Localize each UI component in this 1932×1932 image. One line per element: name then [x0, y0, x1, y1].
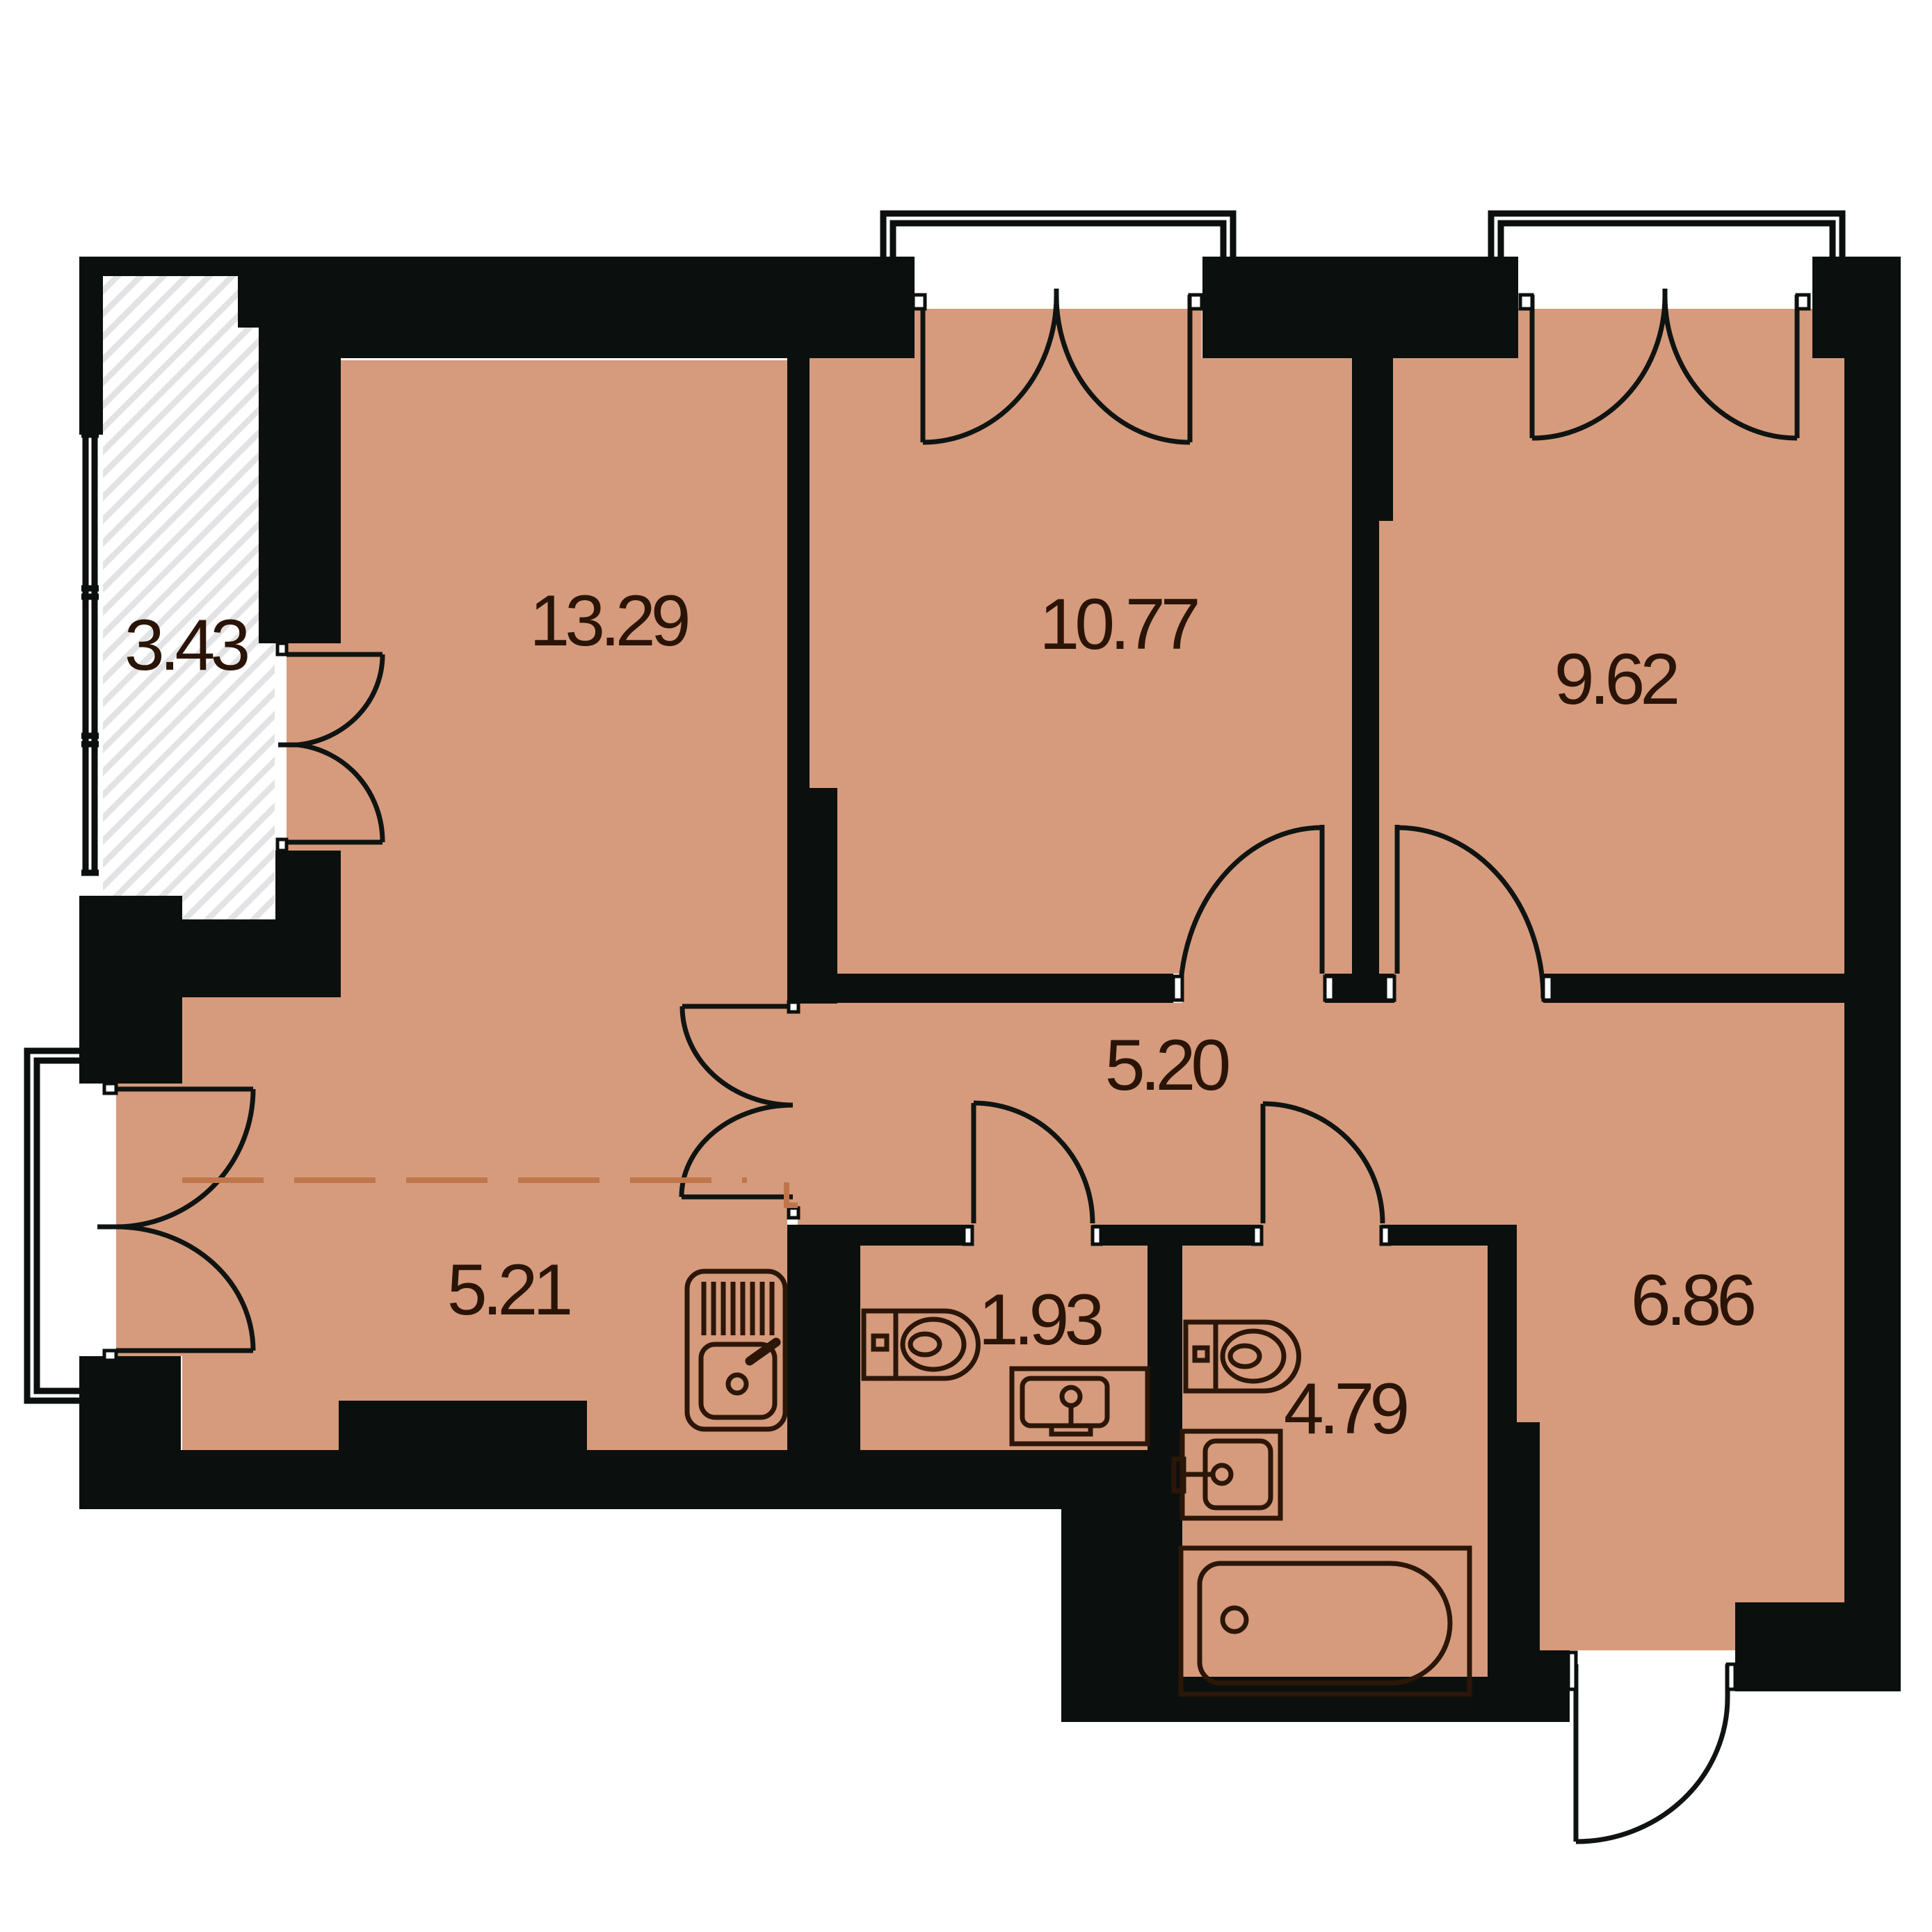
svg-text:10.77: 10.77: [1039, 584, 1197, 665]
svg-text:5.20: 5.20: [1105, 1025, 1229, 1106]
svg-text:5.21: 5.21: [447, 1250, 570, 1330]
svg-text:4.79: 4.79: [1284, 1369, 1407, 1449]
svg-text:1.93: 1.93: [979, 1280, 1102, 1360]
svg-text:6.86: 6.86: [1631, 1260, 1755, 1341]
svg-text:13.29: 13.29: [529, 581, 687, 661]
svg-text:9.62: 9.62: [1554, 639, 1677, 720]
svg-text:3.43: 3.43: [124, 605, 248, 686]
